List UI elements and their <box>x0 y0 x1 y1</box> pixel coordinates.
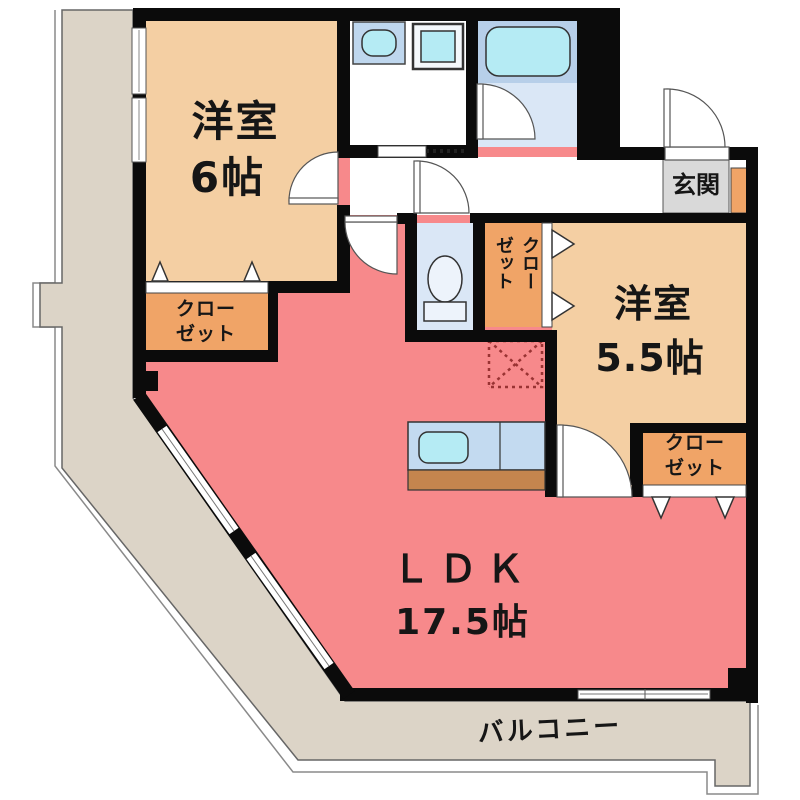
bathtub <box>486 27 570 76</box>
floor-plan: 洋室 6帖 洋室 5.5帖 ＬＤＫ 17.5帖 玄関 バルコニー クローゼット … <box>0 0 800 800</box>
bedroom6-size-label: 6帖 <box>130 155 325 201</box>
kitchen-counter-base <box>408 470 545 490</box>
toilet <box>424 256 466 321</box>
closet-bedroom55-label: クローゼット <box>664 431 726 481</box>
bedroom55-name-label: 洋室 <box>558 284 748 326</box>
washing-machine <box>413 24 463 69</box>
closet-bedroom6-label: クローゼット <box>175 297 237 347</box>
bedroom55-size-label: 5.5帖 <box>552 338 748 380</box>
kitchen-sink <box>419 432 468 463</box>
vanity-sink <box>353 22 405 64</box>
entrance-label: 玄関 <box>663 172 729 198</box>
entrance-side-pillar <box>731 168 748 213</box>
closet-hall-label: クローゼット <box>490 232 542 294</box>
entrance-door <box>664 89 729 160</box>
ldk-name-label: ＬＤＫ <box>335 549 590 591</box>
ldk-south-window <box>578 689 710 700</box>
kitchen-counter <box>408 422 545 490</box>
floor-plan-drawing <box>0 0 800 800</box>
bedroom6-name-label: 洋室 <box>138 99 333 145</box>
ldk-size-label: 17.5帖 <box>335 603 590 643</box>
